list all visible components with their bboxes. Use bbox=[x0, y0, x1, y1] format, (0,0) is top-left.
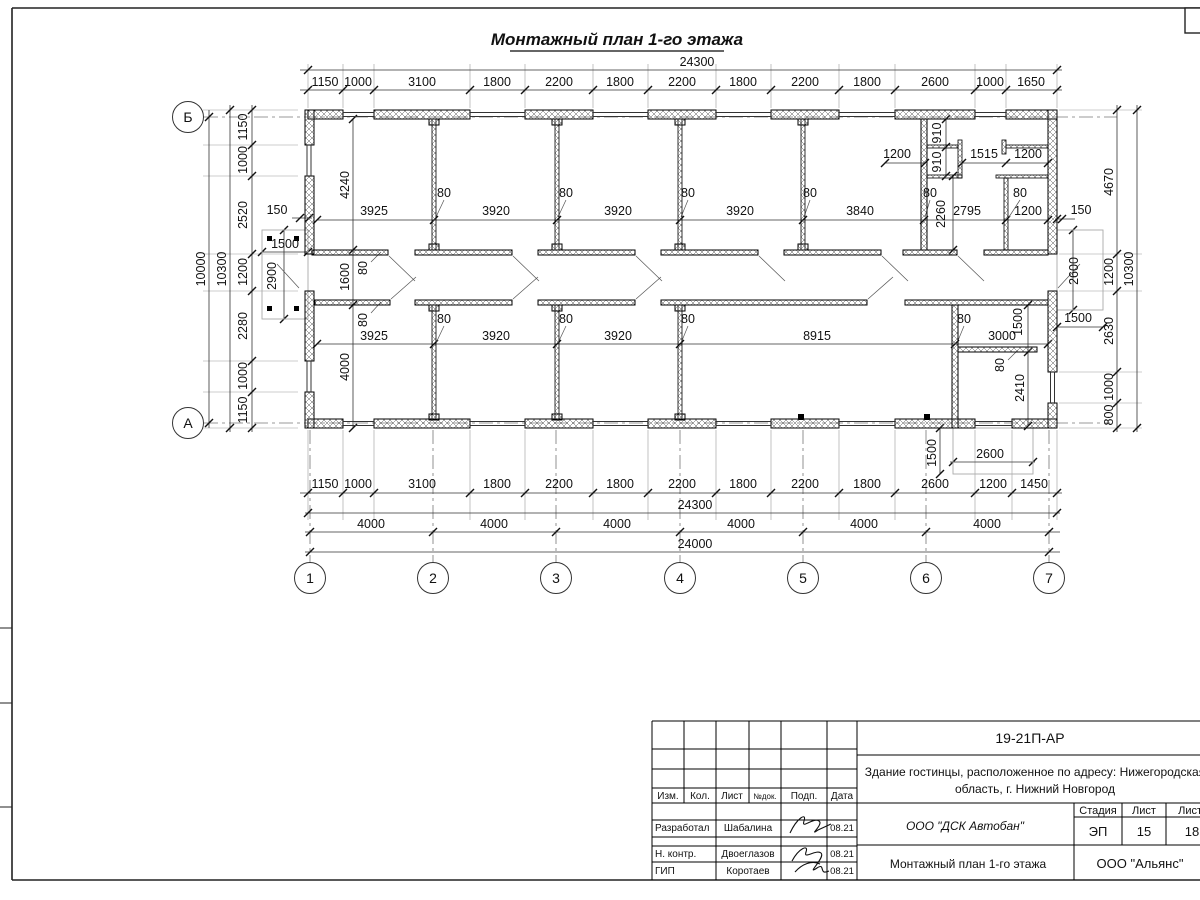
stamp-col-podp: Подп. bbox=[791, 791, 818, 802]
dim-label: 1800 bbox=[729, 477, 757, 491]
dim-label: 1200 bbox=[236, 258, 250, 286]
dim-label: 1000 bbox=[236, 362, 250, 390]
stamp-company: ООО "Альянс" bbox=[1097, 856, 1184, 871]
dim-label: 1500 bbox=[1011, 308, 1025, 336]
dim-label: 24300 bbox=[678, 498, 713, 512]
dim-label: 4000 bbox=[603, 517, 631, 531]
stamp-col-izm: Изм. bbox=[657, 791, 678, 802]
dim-label: 150 bbox=[1071, 203, 1092, 217]
dim-label: 80 bbox=[957, 312, 971, 326]
axis-label-1: 1 bbox=[306, 570, 314, 586]
dim-label: 1800 bbox=[853, 477, 881, 491]
porches-and-details bbox=[262, 200, 1103, 474]
dim-label: 4000 bbox=[338, 353, 352, 381]
dim-label: 1800 bbox=[483, 477, 511, 491]
dim-label: 1000 bbox=[344, 477, 372, 491]
stamp-code: 19-21П-АР bbox=[995, 730, 1064, 746]
drawing-sheet: Монтажный план 1-го этажа 24300115010003… bbox=[0, 0, 1200, 900]
stamp-col-kol: Кол. bbox=[690, 791, 710, 802]
dim-label: 80 bbox=[437, 312, 451, 326]
drawing-title: Монтажный план 1-го этажа bbox=[491, 30, 743, 49]
dim-label: 1500 bbox=[925, 439, 939, 467]
dim-label: 1200 bbox=[1014, 204, 1042, 218]
dim-label: 910 bbox=[930, 152, 944, 173]
dim-label: 1200 bbox=[883, 147, 911, 161]
dim-label: 1150 bbox=[312, 75, 339, 89]
axis-label-b: Б bbox=[183, 109, 192, 125]
dim-label: 910 bbox=[930, 123, 944, 144]
dim-label: 1500 bbox=[271, 237, 299, 251]
dim-label: 3920 bbox=[482, 204, 510, 218]
dim-label: 2200 bbox=[545, 75, 573, 89]
dim-label: 2200 bbox=[668, 75, 696, 89]
dim-label: 80 bbox=[437, 186, 451, 200]
dim-label: 1800 bbox=[853, 75, 881, 89]
signature-2 bbox=[792, 848, 829, 872]
signature-1 bbox=[790, 817, 831, 833]
stamp-sheet-value: 15 bbox=[1137, 824, 1151, 839]
sheet-frame bbox=[0, 8, 1200, 880]
dim-label: 1650 bbox=[1017, 75, 1045, 89]
dim-label: 150 bbox=[267, 203, 288, 217]
dim-label: 1500 bbox=[1064, 311, 1092, 325]
stamp-org: ООО "ДСК Автобан" bbox=[906, 819, 1025, 833]
stamp-role-2: Н. контр. bbox=[655, 849, 696, 860]
stamp-name-2: Двоеглазов bbox=[721, 849, 774, 860]
dim-label: 80 bbox=[923, 186, 937, 200]
dim-label: 1150 bbox=[236, 114, 250, 141]
dim-label: 2200 bbox=[668, 477, 696, 491]
dim-label: 2200 bbox=[791, 75, 819, 89]
dim-label: 1200 bbox=[1014, 147, 1042, 161]
dim-label: 10300 bbox=[1122, 252, 1136, 287]
dim-label: 1150 bbox=[236, 397, 250, 424]
stamp-doc-title: Монтажный план 1-го этажа bbox=[890, 857, 1047, 871]
walls bbox=[305, 110, 1057, 428]
dim-label: 8915 bbox=[803, 329, 831, 343]
dim-label: 80 bbox=[559, 186, 573, 200]
dim-label: 3920 bbox=[604, 329, 632, 343]
dim-label: 2630 bbox=[1102, 317, 1116, 345]
dim-label: 2600 bbox=[921, 75, 949, 89]
dim-label: 80 bbox=[803, 186, 817, 200]
stamp-sheets-label: Листов bbox=[1178, 805, 1200, 817]
dim-label: 3920 bbox=[482, 329, 510, 343]
dim-label: 1000 bbox=[1102, 373, 1116, 401]
dim-label: 4000 bbox=[850, 517, 878, 531]
dim-label: 1000 bbox=[236, 146, 250, 174]
dim-label: 80 bbox=[993, 358, 1007, 372]
dim-label: 3925 bbox=[360, 329, 388, 343]
axis-label-3: 3 bbox=[552, 570, 560, 586]
dim-label: 10300 bbox=[215, 252, 229, 287]
dim-label: 2200 bbox=[545, 477, 573, 491]
floor-plan-svg: Монтажный план 1-го этажа 24300115010003… bbox=[0, 0, 1200, 900]
stamp-role-3: ГИП bbox=[655, 866, 675, 877]
dim-label: 1150 bbox=[312, 477, 339, 491]
dim-label: 1000 bbox=[344, 75, 372, 89]
dim-label: 80 bbox=[681, 312, 695, 326]
stamp-object-line1: Здание гостинцы, расположенное по адресу… bbox=[865, 765, 1200, 779]
dim-label: 4000 bbox=[480, 517, 508, 531]
dim-label: 1800 bbox=[729, 75, 757, 89]
dim-label: 2260 bbox=[934, 200, 948, 228]
stamp-sheet-label: Лист bbox=[1132, 805, 1156, 817]
dim-label: 1800 bbox=[606, 75, 634, 89]
dim-label: 2600 bbox=[976, 447, 1004, 461]
dim-label: 80 bbox=[1013, 186, 1027, 200]
dim-label: 3925 bbox=[360, 204, 388, 218]
dim-label: 2600 bbox=[1067, 257, 1081, 285]
dim-label: 4670 bbox=[1102, 168, 1116, 196]
stamp-date-3: 08.21 bbox=[830, 866, 854, 877]
stamp-stage-value: ЭП bbox=[1089, 824, 1108, 839]
dim-label: 2795 bbox=[953, 204, 981, 218]
dim-label: 800 bbox=[1102, 405, 1116, 426]
stamp-sheets-value: 18 bbox=[1185, 824, 1199, 839]
dim-label: 80 bbox=[356, 313, 370, 327]
dim-label: 4240 bbox=[338, 171, 352, 199]
dim-label: 80 bbox=[356, 261, 370, 275]
stamp-col-data: Дата bbox=[831, 791, 854, 802]
axis-label-6: 6 bbox=[922, 570, 930, 586]
axis-label-4: 4 bbox=[676, 570, 684, 586]
corner-format-box bbox=[1185, 8, 1200, 33]
dim-label: 1800 bbox=[606, 477, 634, 491]
axis-label-a: А bbox=[183, 415, 193, 431]
dim-label: 2410 bbox=[1013, 374, 1027, 402]
stamp-name-1: Шабалина bbox=[724, 822, 773, 834]
dim-label: 1600 bbox=[338, 263, 352, 291]
stamp-col-list: Лист bbox=[721, 791, 743, 802]
stamp-date-2: 08.21 bbox=[830, 849, 854, 860]
dim-label: 2520 bbox=[236, 201, 250, 229]
dim-label: 2280 bbox=[236, 312, 250, 340]
dim-label: 3100 bbox=[408, 75, 436, 89]
stamp-date-1: 08.21 bbox=[830, 823, 854, 834]
dim-label: 1000 bbox=[976, 75, 1004, 89]
dim-label: 24300 bbox=[680, 55, 715, 69]
dim-label: 1200 bbox=[1102, 258, 1116, 286]
dim-label: 3920 bbox=[726, 204, 754, 218]
dim-label: 10000 bbox=[194, 252, 208, 287]
dim-label: 1800 bbox=[483, 75, 511, 89]
dim-label: 80 bbox=[681, 186, 695, 200]
dim-label: 2200 bbox=[791, 477, 819, 491]
stamp-col-ndok: №док. bbox=[753, 792, 776, 801]
stamp-object-line2: область, г. Нижний Новгород bbox=[955, 782, 1115, 796]
dim-label: 24000 bbox=[678, 537, 713, 551]
dim-label: 1515 bbox=[970, 147, 998, 161]
dim-label: 2600 bbox=[921, 477, 949, 491]
dim-label: 80 bbox=[559, 312, 573, 326]
dim-label: 4000 bbox=[727, 517, 755, 531]
dim-label: 1200 bbox=[979, 477, 1007, 491]
axis-label-2: 2 bbox=[429, 570, 437, 586]
dim-label: 2900 bbox=[265, 262, 279, 290]
stamp-name-3: Коротаев bbox=[726, 866, 769, 877]
axis-label-5: 5 bbox=[799, 570, 807, 586]
dim-label: 4000 bbox=[357, 517, 385, 531]
dim-label: 1450 bbox=[1020, 477, 1048, 491]
title-block: 19-21П-АР Здание гостинцы, расположенное… bbox=[652, 721, 1200, 880]
axis-label-7: 7 bbox=[1045, 570, 1053, 586]
dim-label: 4000 bbox=[973, 517, 1001, 531]
stamp-role-1: Разработал bbox=[655, 822, 710, 834]
dim-label: 3840 bbox=[846, 204, 874, 218]
dim-label: 3920 bbox=[604, 204, 632, 218]
dim-label: 3100 bbox=[408, 477, 436, 491]
stamp-stage-label: Стадия bbox=[1079, 805, 1117, 817]
